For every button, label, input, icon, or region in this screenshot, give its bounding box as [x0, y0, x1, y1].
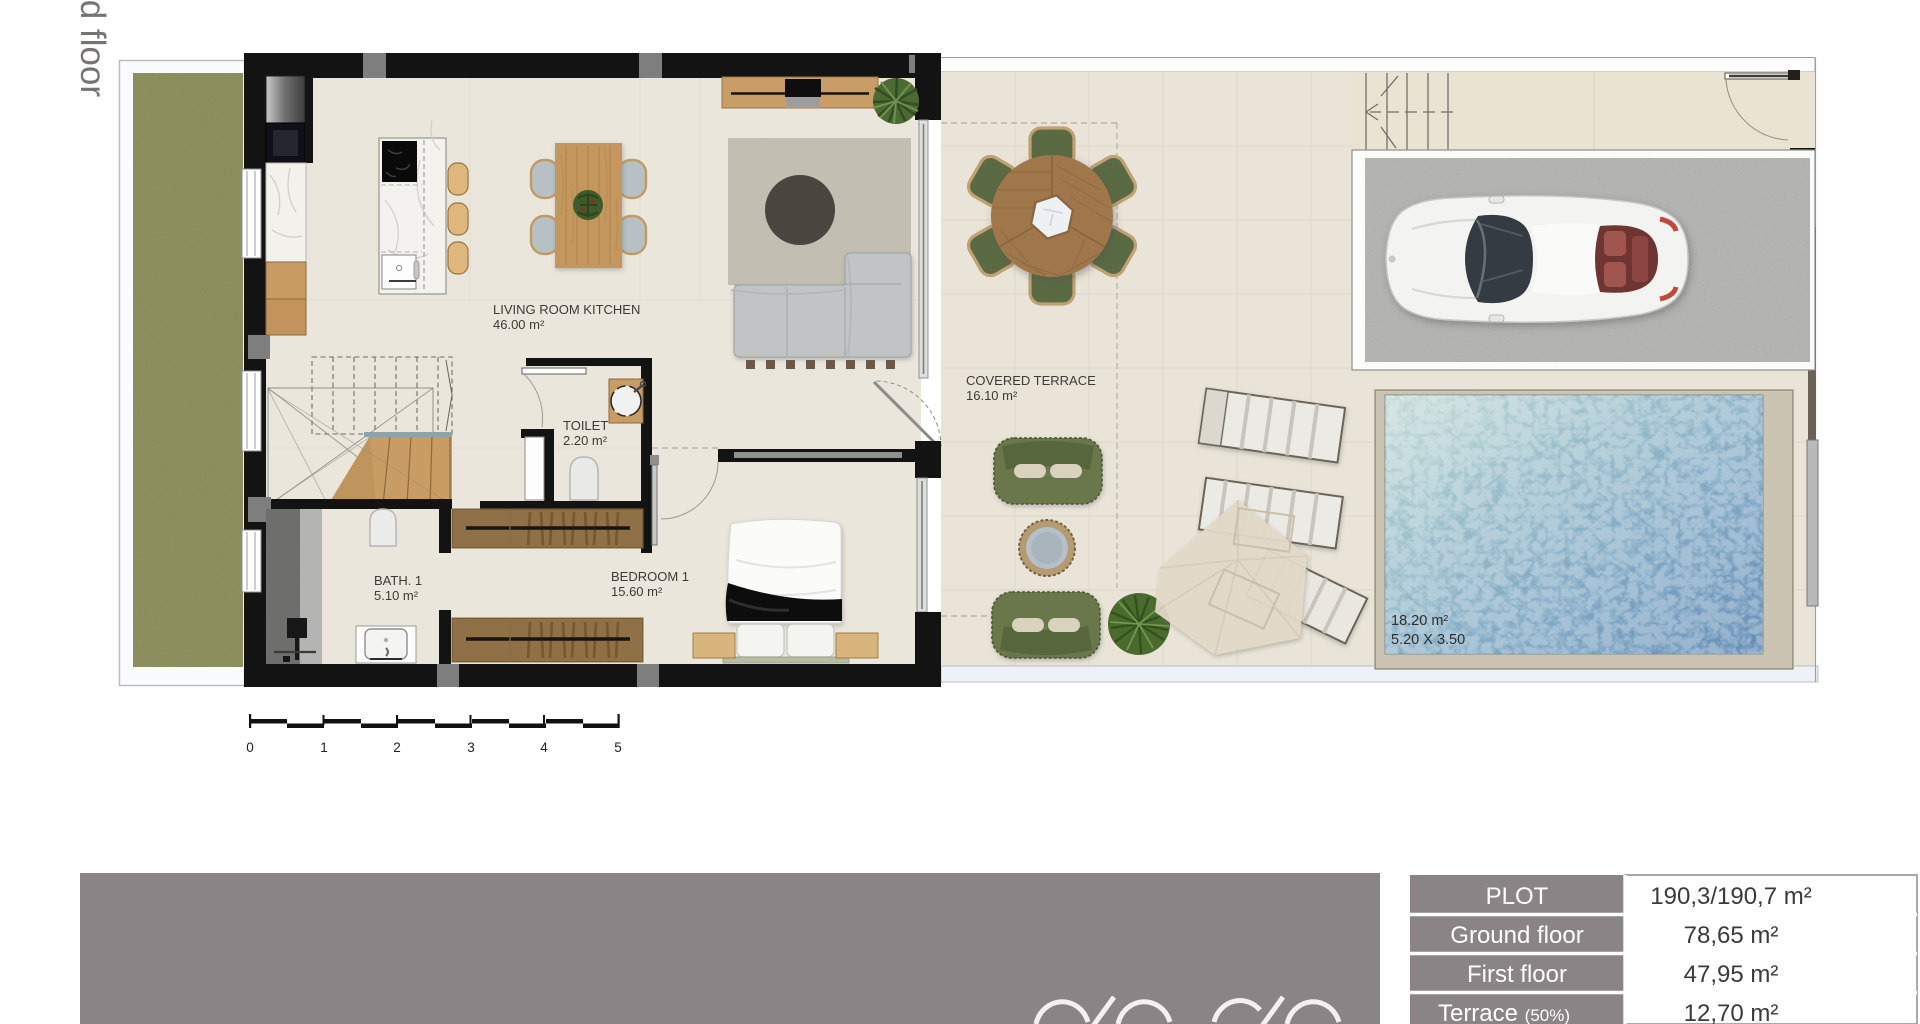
svg-text:47,95 m²: 47,95 m²	[1684, 961, 1779, 988]
svg-text:0: 0	[246, 740, 254, 755]
svg-text:12,70 m²: 12,70 m²	[1684, 1000, 1779, 1024]
svg-text:Ground floor: Ground floor	[1450, 922, 1583, 949]
svg-text:BATH. 1: BATH. 1	[374, 573, 422, 588]
svg-text:First floor: First floor	[1467, 961, 1567, 988]
svg-text:PLOT: PLOT	[1486, 883, 1549, 910]
svg-text:16.10 m²: 16.10 m²	[966, 388, 1018, 403]
svg-text:TOILET: TOILET	[563, 418, 608, 433]
svg-text:18.20 m²: 18.20 m²	[1391, 613, 1448, 629]
svg-text:LIVING ROOM KITCHEN: LIVING ROOM KITCHEN	[493, 302, 640, 317]
svg-text:2.20 m²: 2.20 m²	[563, 433, 608, 448]
svg-text:Ground floor: Ground floor	[73, 0, 112, 97]
svg-text:BEDROOM 1: BEDROOM 1	[611, 569, 689, 584]
svg-text:3: 3	[467, 740, 475, 755]
svg-text:46.00 m²: 46.00 m²	[493, 317, 545, 332]
svg-text:COVERED TERRACE: COVERED TERRACE	[966, 373, 1096, 388]
svg-text:15.60 m²: 15.60 m²	[611, 584, 663, 599]
svg-text:4: 4	[540, 740, 548, 755]
svg-text:2: 2	[393, 740, 401, 755]
svg-text:78,65 m²: 78,65 m²	[1684, 922, 1779, 949]
svg-text:5.10 m²: 5.10 m²	[374, 588, 419, 603]
svg-text:190,3/190,7 m²: 190,3/190,7 m²	[1650, 883, 1811, 910]
svg-text:5.20 X 3.50: 5.20 X 3.50	[1391, 632, 1465, 648]
svg-text:5: 5	[614, 740, 622, 755]
svg-text:1: 1	[320, 740, 328, 755]
